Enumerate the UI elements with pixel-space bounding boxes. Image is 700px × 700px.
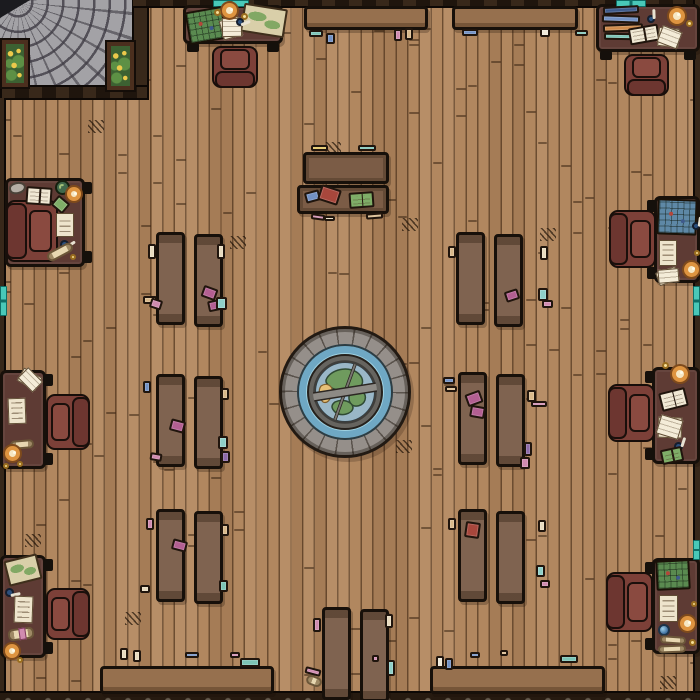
floor-seam xyxy=(234,529,244,531)
chair-seat xyxy=(51,597,70,632)
chair xyxy=(212,46,258,88)
chair-seat xyxy=(51,403,70,440)
floor-seam xyxy=(223,212,233,214)
board-piece xyxy=(676,576,680,580)
hatch-mark xyxy=(25,534,41,547)
prop-book xyxy=(221,451,230,463)
floor-seam xyxy=(631,640,641,642)
prop-book xyxy=(366,212,383,219)
floor-seam xyxy=(421,327,431,329)
floor-seam xyxy=(269,403,279,405)
student-table xyxy=(494,234,523,327)
floor-seam xyxy=(164,469,174,471)
bench xyxy=(430,666,605,694)
prop-book xyxy=(469,405,486,419)
prop-book xyxy=(143,381,151,393)
floor-seam xyxy=(456,88,466,90)
prop-book xyxy=(311,145,328,151)
prop-book xyxy=(540,580,550,588)
floor-plank xyxy=(280,0,292,700)
student-table xyxy=(496,511,525,604)
floor-seam xyxy=(526,539,536,541)
desk-feet xyxy=(600,51,612,60)
prop-book xyxy=(464,521,481,539)
prop-book xyxy=(313,618,321,632)
bench xyxy=(452,6,578,30)
floor-seam xyxy=(608,644,618,646)
floor-seam xyxy=(608,82,618,84)
prop-coin xyxy=(691,601,697,607)
prop-book xyxy=(140,585,150,593)
floor-seam xyxy=(83,584,93,586)
chair xyxy=(46,588,90,640)
desk-feet xyxy=(44,374,53,386)
floor-seam xyxy=(468,220,478,222)
floor-seam xyxy=(678,488,688,490)
floor-plank xyxy=(105,0,117,700)
hatch-mark xyxy=(88,120,104,133)
prop-book xyxy=(309,30,323,37)
floor-seam xyxy=(13,135,23,137)
prop-book xyxy=(436,656,444,668)
hatch-mark xyxy=(230,236,246,249)
chair-back xyxy=(6,203,27,259)
floor-seam xyxy=(433,162,443,164)
prop-book xyxy=(602,14,640,23)
floor-seam xyxy=(316,58,326,60)
prop-book xyxy=(394,29,402,41)
floor-seam xyxy=(409,362,419,364)
chair xyxy=(46,394,90,450)
floor-seam xyxy=(36,677,46,679)
floor-seam xyxy=(573,201,583,203)
book-lines xyxy=(664,451,679,461)
floor-seam xyxy=(620,328,630,330)
globe xyxy=(313,360,377,424)
prop-candle xyxy=(5,446,20,461)
floor-seam xyxy=(106,327,116,329)
prop-scroll xyxy=(660,635,686,645)
floor-seam xyxy=(526,344,536,346)
candle-wick xyxy=(692,267,695,270)
board-piece xyxy=(666,571,670,575)
prop-book xyxy=(240,658,260,667)
desk-feet xyxy=(645,448,654,460)
floor-seam xyxy=(643,344,653,346)
board-piece xyxy=(680,219,684,223)
chair xyxy=(608,384,655,442)
floor-seam xyxy=(608,658,618,660)
floor-seam xyxy=(421,527,431,529)
desk-feet xyxy=(83,182,92,194)
desk-feet xyxy=(44,453,53,465)
floor-seam xyxy=(153,135,163,137)
prop-book xyxy=(217,244,225,259)
candle-wick xyxy=(12,649,15,652)
prop-book xyxy=(448,518,456,530)
book-lines xyxy=(30,190,49,201)
prop-book xyxy=(385,614,393,628)
floor-seam xyxy=(59,499,69,501)
prop-open-book xyxy=(25,186,52,206)
prop-candle xyxy=(5,644,19,658)
floor-seam xyxy=(409,112,419,114)
prop-coin xyxy=(17,657,23,663)
prop-coin xyxy=(17,461,23,467)
floor-seam xyxy=(491,61,501,63)
candle-wick xyxy=(677,13,680,16)
floor-seam xyxy=(468,85,478,87)
battle-map xyxy=(0,0,700,700)
floor-seam xyxy=(549,349,559,351)
prop-coin xyxy=(214,9,221,16)
prop-coin xyxy=(3,463,9,469)
chair-back xyxy=(606,575,625,629)
floor-seam xyxy=(409,44,419,46)
floor-seam xyxy=(234,511,244,513)
floor-seam xyxy=(304,567,314,569)
floor-seam xyxy=(561,307,571,309)
prop-candle xyxy=(669,8,685,24)
prop-candle xyxy=(67,187,81,201)
floor-seam xyxy=(573,374,583,376)
hatch-mark xyxy=(540,228,556,241)
chair xyxy=(609,210,656,268)
chair-back xyxy=(609,213,628,265)
floor-seam xyxy=(351,91,361,93)
prop-grid-board xyxy=(656,198,697,235)
prop-book xyxy=(358,145,376,151)
prop-book xyxy=(520,457,530,469)
chair-seat xyxy=(627,582,648,622)
prop-book xyxy=(221,524,229,536)
prop-coin xyxy=(70,254,76,260)
desk-feet xyxy=(267,43,279,52)
prop-book xyxy=(324,216,335,221)
floor-seam xyxy=(106,412,116,414)
floor-seam xyxy=(421,425,431,427)
floor-seam xyxy=(585,578,595,580)
prop-lined-paper xyxy=(659,595,678,622)
floor-seam xyxy=(118,172,128,174)
floor-seam xyxy=(561,165,571,167)
floor-seam xyxy=(94,455,104,457)
floor-seam xyxy=(456,115,466,117)
chair-seat xyxy=(629,394,650,433)
chair-back xyxy=(72,397,90,447)
prop-lined-paper xyxy=(56,213,74,237)
desk-feet xyxy=(645,638,654,650)
scroll-ribbon xyxy=(18,627,27,640)
floor-seam xyxy=(538,535,548,537)
floor-seam xyxy=(211,477,221,479)
book-lines xyxy=(663,392,684,407)
window xyxy=(0,286,7,316)
prop-book xyxy=(542,300,553,308)
floor-seam xyxy=(176,159,186,161)
bench xyxy=(100,666,274,694)
candle-wick xyxy=(74,192,77,195)
desk-feet xyxy=(44,642,53,654)
chair xyxy=(624,54,669,96)
prop-book xyxy=(405,28,413,40)
floor-seam xyxy=(24,303,34,305)
board-piece xyxy=(210,26,215,31)
quill xyxy=(652,9,655,19)
candle-wick xyxy=(13,451,16,454)
candle-wick xyxy=(230,8,233,11)
floor-seam xyxy=(409,617,419,619)
floor-seam xyxy=(339,273,349,275)
window xyxy=(693,286,700,316)
book-lines xyxy=(632,28,655,41)
candle-wick xyxy=(688,621,691,624)
prop-book xyxy=(470,652,480,658)
book-lines xyxy=(353,195,371,204)
prop-coin xyxy=(689,639,696,646)
student-table xyxy=(456,232,485,325)
window xyxy=(693,540,700,560)
prop-candle xyxy=(222,3,237,18)
prop-lined-paper xyxy=(8,398,27,425)
floor-seam xyxy=(71,680,81,682)
floor-seam xyxy=(620,319,630,321)
student-table xyxy=(496,374,525,467)
prop-scroll xyxy=(658,645,686,654)
prop-candle xyxy=(680,616,695,631)
floor-seam xyxy=(596,350,606,352)
prop-coin xyxy=(686,20,693,27)
floor-plank xyxy=(222,0,234,700)
student-table xyxy=(156,509,185,602)
prop-book xyxy=(387,660,395,676)
floor-seam xyxy=(573,232,583,234)
prop-book xyxy=(448,246,456,258)
prop-book xyxy=(540,246,548,260)
desk-feet xyxy=(645,371,654,383)
floor-plank xyxy=(443,0,455,700)
floor-seam xyxy=(246,192,256,194)
prop-book xyxy=(326,33,335,44)
prop-book xyxy=(443,377,455,384)
desk-feet xyxy=(83,251,92,263)
floor-seam xyxy=(526,299,536,301)
floor-seam xyxy=(176,65,186,67)
board-piece xyxy=(198,22,203,27)
candle-wick xyxy=(680,371,683,374)
prop-coin xyxy=(694,250,700,256)
hatch-mark xyxy=(402,218,418,231)
prop-lined-paper xyxy=(14,596,34,624)
floor-seam xyxy=(433,468,443,470)
floor-seam xyxy=(433,474,443,476)
prop-book xyxy=(372,655,379,662)
prop-coin xyxy=(662,362,669,369)
floor-plank xyxy=(93,0,105,700)
floor-seam xyxy=(655,535,665,537)
floor-seam xyxy=(526,111,536,113)
hatch-mark xyxy=(660,676,676,689)
floor-seam xyxy=(59,153,69,155)
floor-seam xyxy=(118,154,128,156)
chair-back xyxy=(215,71,255,88)
desk-feet xyxy=(44,559,53,571)
prop-grid-board xyxy=(655,559,691,591)
chair-back xyxy=(627,79,666,96)
floor-seam xyxy=(608,473,618,475)
floor-plank xyxy=(420,0,432,700)
prop-book xyxy=(500,650,508,656)
floor-seam xyxy=(71,356,81,358)
floor-seam xyxy=(444,630,454,632)
prop-book xyxy=(120,648,128,660)
floor-seam xyxy=(585,197,595,199)
board-piece xyxy=(669,212,673,216)
student-table xyxy=(194,376,223,469)
floor-seam xyxy=(538,142,548,144)
prop-book xyxy=(230,652,240,658)
demo-table xyxy=(303,152,389,184)
chair-seat xyxy=(29,210,52,252)
prop-book xyxy=(218,436,228,449)
floor-plank xyxy=(128,0,140,700)
floor-seam xyxy=(83,340,93,342)
prop-book xyxy=(185,652,199,658)
globe-svg xyxy=(313,360,377,424)
prop-open-book xyxy=(348,191,374,209)
floor-seam xyxy=(514,64,524,66)
prop-book xyxy=(536,565,545,577)
prop-book xyxy=(445,386,457,392)
planter xyxy=(2,40,28,87)
chair-seat xyxy=(220,49,250,70)
floor-seam xyxy=(36,524,46,526)
prop-book xyxy=(524,442,532,456)
floor-seam xyxy=(643,174,653,176)
prop-book xyxy=(538,520,546,532)
prop-book xyxy=(221,388,229,400)
paper-sheet xyxy=(657,268,679,284)
prop-candle xyxy=(684,262,699,277)
floor-plank xyxy=(397,0,409,700)
prop-book xyxy=(531,401,547,407)
chair-seat xyxy=(630,220,651,259)
floor-seam xyxy=(258,351,268,353)
floor-seam xyxy=(129,414,139,416)
prop-book xyxy=(148,244,156,259)
floor-seam xyxy=(596,79,606,81)
hatch-mark xyxy=(125,612,141,625)
prop-book xyxy=(133,650,141,662)
prop-book xyxy=(540,28,550,37)
floor-seam xyxy=(153,182,163,184)
prop-book xyxy=(575,30,588,36)
floor-plank xyxy=(537,0,549,700)
chair-back xyxy=(72,591,90,637)
floor-seam xyxy=(141,293,151,295)
floor-seam xyxy=(141,225,151,227)
planter xyxy=(107,42,134,90)
prop-papers xyxy=(654,414,685,441)
floor-seam xyxy=(304,123,314,125)
student-table xyxy=(156,232,185,325)
floor-plank xyxy=(117,0,129,700)
floor-seam xyxy=(59,272,69,274)
prop-book xyxy=(445,658,453,670)
hatch-mark xyxy=(396,440,412,453)
prop-book xyxy=(560,655,578,663)
prop-book xyxy=(216,297,227,310)
prop-candle xyxy=(672,366,688,382)
student-table xyxy=(322,607,351,700)
prop-book xyxy=(462,29,478,36)
chair-back xyxy=(608,387,627,439)
bench xyxy=(304,6,428,30)
floor-seam xyxy=(596,373,606,375)
floor-seam xyxy=(71,580,81,582)
floor-seam xyxy=(211,108,221,110)
jar-swirl xyxy=(59,184,65,190)
chair-seat xyxy=(632,57,662,78)
prop-book xyxy=(219,580,228,592)
chair xyxy=(606,572,653,632)
desk-feet xyxy=(684,51,696,60)
prop-book xyxy=(146,518,154,530)
prop-orb xyxy=(658,624,670,636)
floor-plank xyxy=(245,0,257,700)
floor-plank xyxy=(140,0,152,700)
prop-lined-paper xyxy=(659,240,677,266)
floor-seam xyxy=(631,171,641,173)
